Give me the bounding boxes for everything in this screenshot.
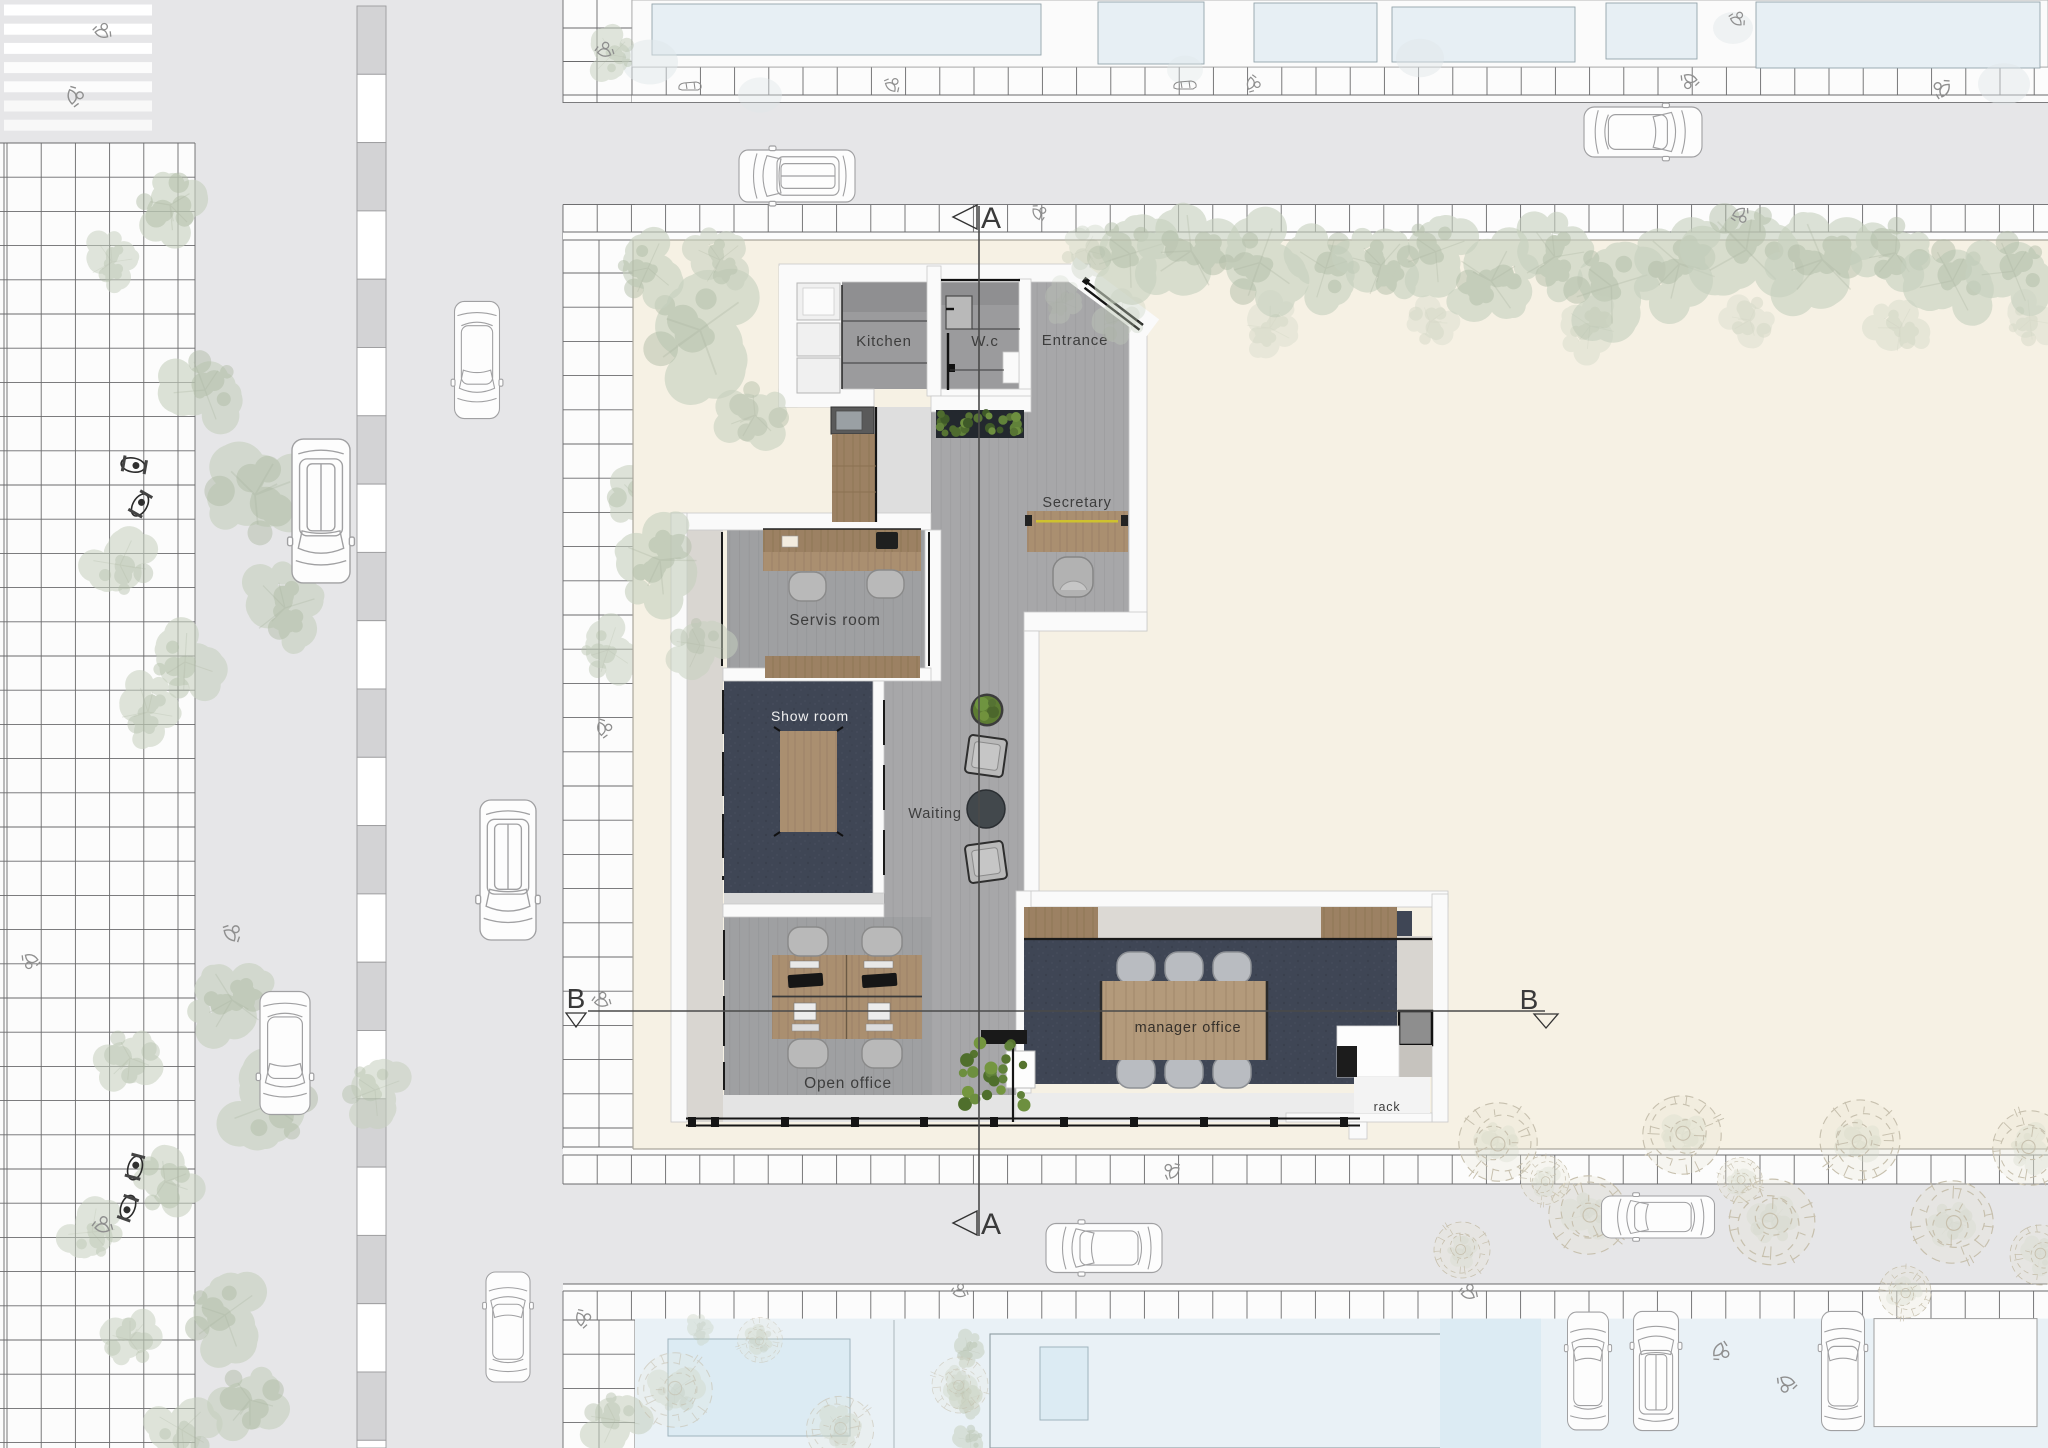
- svg-text:rack: rack: [1374, 1100, 1401, 1114]
- svg-text:Secretary: Secretary: [1042, 495, 1111, 511]
- svg-text:Servis room: Servis room: [789, 612, 880, 629]
- svg-text:Kitchen: Kitchen: [856, 333, 912, 350]
- svg-text:Entrance: Entrance: [1042, 332, 1108, 349]
- svg-text:manager office: manager office: [1135, 1020, 1242, 1036]
- svg-text:A: A: [981, 202, 1001, 235]
- svg-text:Waiting: Waiting: [908, 806, 961, 822]
- svg-text:Open office: Open office: [804, 1075, 892, 1092]
- svg-text:A: A: [981, 1208, 1001, 1241]
- svg-text:B: B: [567, 983, 586, 1014]
- svg-text:B: B: [1520, 984, 1539, 1015]
- svg-text:W.c: W.c: [971, 333, 998, 350]
- svg-text:Show room: Show room: [771, 708, 849, 724]
